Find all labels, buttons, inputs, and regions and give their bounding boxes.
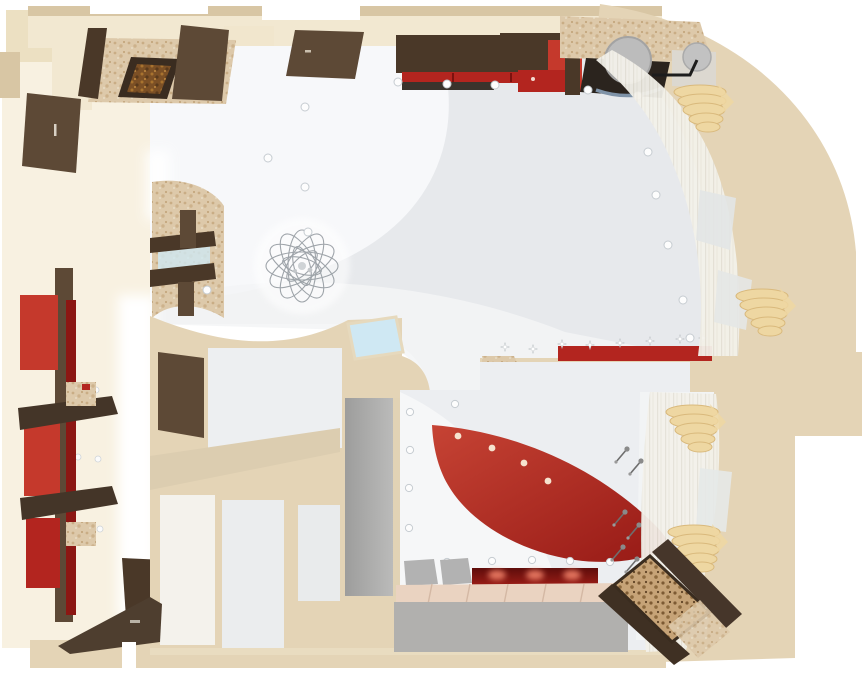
pouf-1 — [404, 559, 438, 586]
interior-door-handle — [305, 50, 311, 53]
red-panel-1 — [20, 295, 58, 370]
shelf-stone-block-2 — [66, 522, 96, 546]
chandelier — [254, 218, 350, 314]
gray-wardrobe — [345, 398, 395, 596]
room-gray-1 — [222, 500, 284, 648]
tv-post-1 — [180, 210, 196, 248]
side-chair — [683, 43, 711, 71]
entry-door — [22, 93, 81, 173]
tv-shelf-unit — [150, 181, 224, 318]
sideboard-knob — [531, 77, 535, 81]
red-panel-3 — [26, 518, 60, 588]
entry-door-handle — [54, 124, 57, 136]
tv-post-2 — [178, 282, 194, 316]
skylight — [348, 317, 403, 359]
open-door-handle — [130, 620, 140, 623]
shelf-red-accent — [82, 384, 90, 390]
bottom-wall-doorway-gap — [122, 642, 136, 668]
red-sideboard — [518, 70, 566, 92]
wall-wardrobe — [396, 33, 582, 95]
shelf-stone-block-1 — [66, 382, 96, 406]
room-gray-2 — [298, 505, 340, 601]
gray-wardrobe-edge — [393, 398, 401, 596]
interior-door-top — [286, 30, 364, 79]
bedroom-window-1 — [696, 468, 732, 532]
red-light-shelf-top — [558, 346, 712, 361]
plan-canvas — [0, 0, 862, 673]
fireplace-column-right — [172, 25, 229, 101]
shelving-red-rail — [66, 300, 76, 615]
left-wall-edge — [0, 52, 20, 98]
tiled-floor-strip — [396, 583, 628, 605]
bedroom — [394, 362, 742, 665]
pouf-2 — [440, 558, 472, 585]
entry-door-panel — [22, 93, 81, 173]
living-window-1 — [696, 190, 736, 250]
red-panel-2 — [24, 418, 60, 496]
wall-tv-panel — [158, 352, 204, 438]
apartment-plan-render — [0, 0, 862, 673]
interior-door-panel — [286, 30, 364, 79]
top-wall-notch — [262, 0, 360, 20]
room-white — [160, 495, 215, 645]
gray-floor-mat — [394, 602, 628, 652]
top-wall-notch2 — [90, 0, 208, 14]
